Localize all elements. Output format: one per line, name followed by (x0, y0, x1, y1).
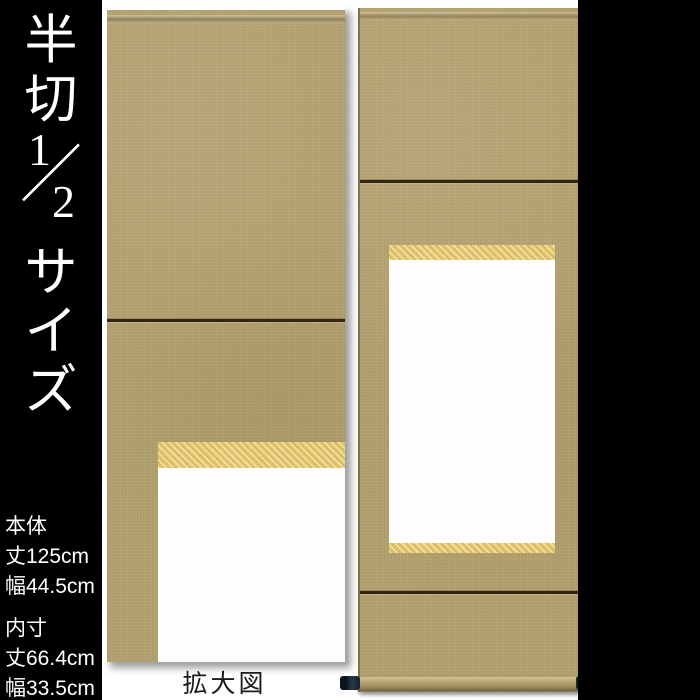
dimension-specs: 本体 丈125cm 幅44.5cm 内寸 丈66.4cm 幅33.5cm (5, 512, 102, 700)
size-title-char: サ (25, 244, 78, 303)
hanging-rod-shading (107, 15, 345, 25)
blank-paper-panel (158, 468, 345, 662)
scroll-roller-bar (358, 677, 580, 691)
size-fraction: 1 ／ 2 (0, 131, 102, 235)
full-scroll-photo (358, 8, 580, 692)
inner-length: 丈66.4cm (5, 644, 102, 674)
upper-divider-line (360, 180, 579, 183)
enlarged-fabric-photo (104, 6, 345, 662)
inner-label: 内寸 (5, 614, 102, 644)
gold-band-top (389, 245, 555, 260)
product-banner: 半 切 1 ／ 2 サ イ ズ 本体 丈125cm 幅44.5cm 内寸 丈66… (0, 0, 700, 700)
lower-divider-line (360, 591, 579, 594)
roller-knob-left (340, 676, 360, 690)
enlarged-view-caption: 拡大図 (104, 664, 345, 700)
inner-width: 幅33.5cm (5, 674, 102, 700)
blank-paper-panel (389, 260, 555, 543)
body-length: 丈125cm (5, 542, 102, 572)
right-title-panel: 白 抜 掛 軸 (578, 0, 700, 700)
body-width: 幅44.5cm (5, 572, 102, 602)
size-title-char: ズ (25, 362, 78, 421)
body-dimensions: 本体 丈125cm 幅44.5cm (5, 512, 102, 601)
mount-divider-line (107, 319, 345, 322)
size-title-vertical: 半 切 1 ／ 2 サ イ ズ (0, 12, 102, 422)
fraction-denominator: 2 (52, 179, 75, 225)
gold-ichimonji-band (158, 442, 345, 468)
body-label: 本体 (5, 512, 102, 542)
fabric-closeup (107, 10, 345, 662)
size-title-char: 半 (25, 12, 78, 71)
left-info-panel: 半 切 1 ／ 2 サ イ ズ 本体 丈125cm 幅44.5cm 内寸 丈66… (0, 0, 102, 700)
inner-dimensions: 内寸 丈66.4cm 幅33.5cm (5, 614, 102, 700)
gold-band-bottom (389, 543, 555, 553)
size-title-char: 切 (25, 71, 78, 130)
size-title-char: イ (25, 303, 78, 362)
hanging-rod-shading (360, 12, 579, 22)
